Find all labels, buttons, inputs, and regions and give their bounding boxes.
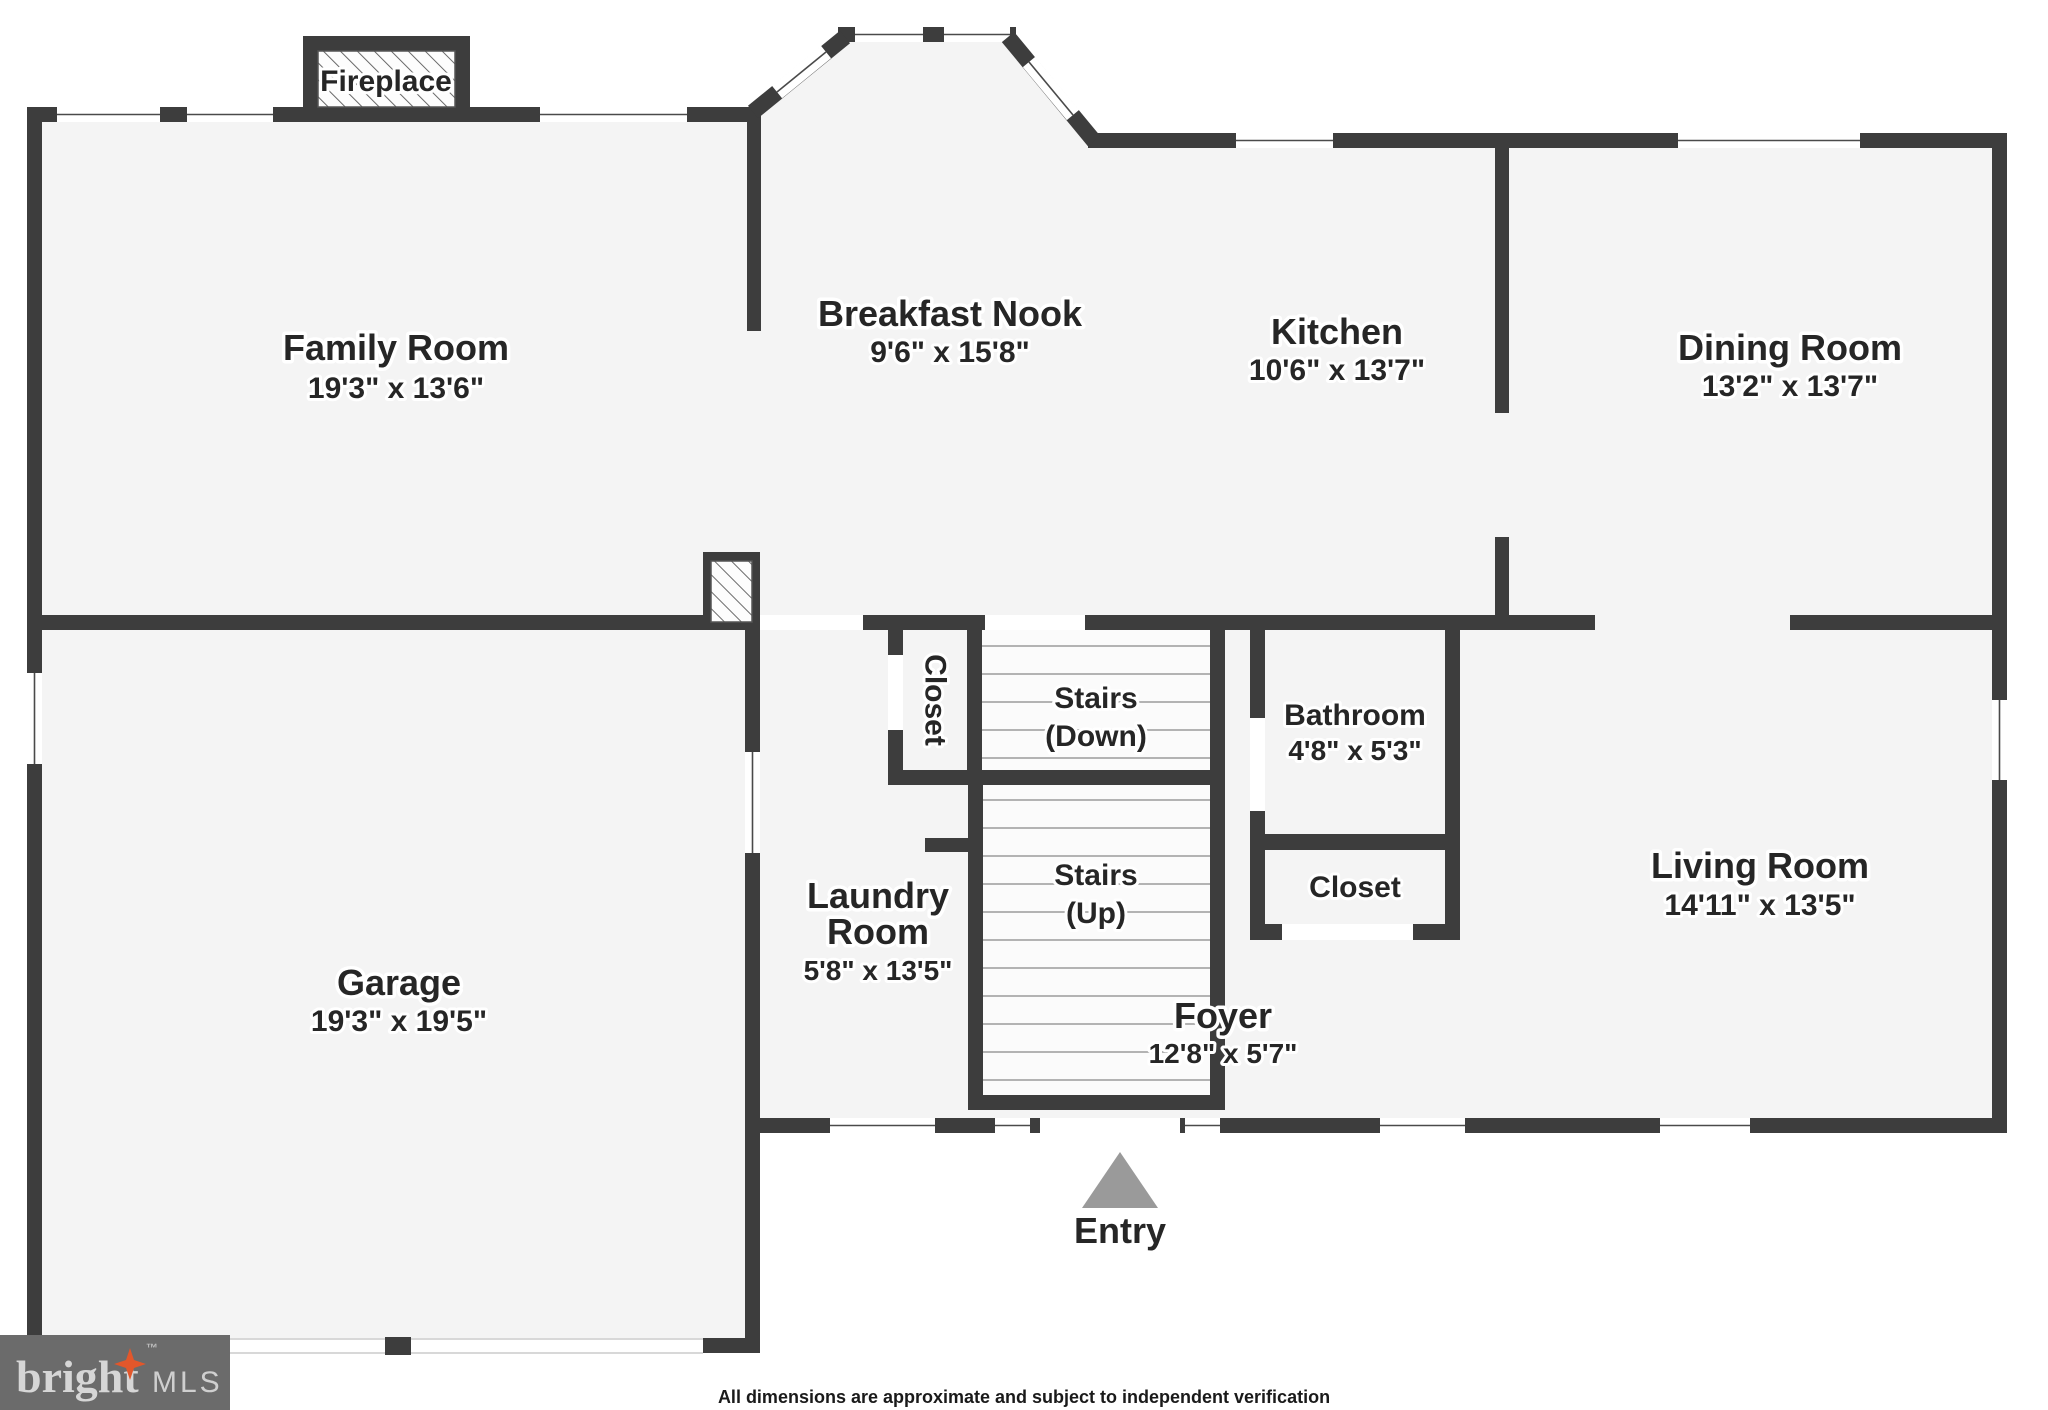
room-dims-kitchen: 10'6" x 13'7" bbox=[1249, 354, 1425, 387]
logo-brand-text: bright bbox=[16, 1351, 139, 1402]
entry-door-opening bbox=[1040, 1118, 1180, 1133]
door-opening bbox=[1250, 718, 1265, 811]
chimney-structure bbox=[703, 552, 760, 630]
room-dims-family: 19'3" x 13'6" bbox=[308, 372, 484, 405]
door-opening bbox=[888, 655, 903, 730]
stairs-down-label-1: Stairs bbox=[1054, 682, 1137, 715]
hall-closet-label: Closet bbox=[919, 654, 952, 746]
room-dims-dining: 13'2" x 13'7" bbox=[1702, 370, 1878, 403]
disclaimer-text: All dimensions are approximate and subje… bbox=[718, 1387, 1330, 1407]
logo-tm-text: ™ bbox=[146, 1341, 158, 1355]
room-label-dining: Dining Room bbox=[1678, 327, 1902, 368]
room-label-kitchen: Kitchen bbox=[1271, 311, 1403, 352]
room-label-living: Living Room bbox=[1651, 845, 1869, 886]
logo-suffix-text: MLS bbox=[152, 1366, 223, 1399]
room-label-garage: Garage bbox=[337, 962, 461, 1003]
room-label-bathroom: Bathroom bbox=[1284, 699, 1426, 732]
door-opening bbox=[985, 615, 1085, 630]
room-dims-foyer: 12'8" x 5'7" bbox=[1149, 1038, 1298, 1069]
room-label-foyer: Foyer bbox=[1174, 995, 1272, 1036]
stairs-up-label-1: Stairs bbox=[1054, 859, 1137, 892]
entry-label: Entry bbox=[1074, 1210, 1166, 1251]
fireplace-label: Fireplace bbox=[320, 65, 452, 98]
floor-plan: Family Room 19'3" x 13'6" Breakfast Nook… bbox=[0, 0, 2048, 1410]
room-dims-laundry: 5'8" x 13'5" bbox=[804, 955, 953, 986]
bath-closet-label: Closet bbox=[1309, 871, 1401, 904]
room-dims-bathroom: 4'8" x 5'3" bbox=[1288, 735, 1421, 766]
stairs-up-label-2: (Up) bbox=[1066, 897, 1126, 930]
room-label-laundry-1: Laundry bbox=[807, 875, 949, 916]
door-opening bbox=[1282, 924, 1413, 940]
room-label-breakfast: Breakfast Nook bbox=[818, 293, 1083, 334]
stairs-down-label-2: (Down) bbox=[1045, 720, 1147, 753]
floor-plan-page: Family Room 19'3" x 13'6" Breakfast Nook… bbox=[0, 0, 2048, 1410]
entry-marker-icon bbox=[1082, 1152, 1158, 1208]
brightmls-logo: bright ™ MLS bbox=[0, 1335, 230, 1410]
room-label-family: Family Room bbox=[283, 327, 509, 368]
garage-door-post bbox=[385, 1337, 411, 1355]
room-dims-breakfast: 9'6" x 15'8" bbox=[870, 336, 1030, 369]
door-opening bbox=[760, 615, 863, 630]
room-dims-garage: 19'3" x 19'5" bbox=[311, 1005, 487, 1038]
room-dims-living: 14'11" x 13'5" bbox=[1664, 889, 1855, 922]
room-label-laundry-2: Room bbox=[827, 911, 929, 952]
